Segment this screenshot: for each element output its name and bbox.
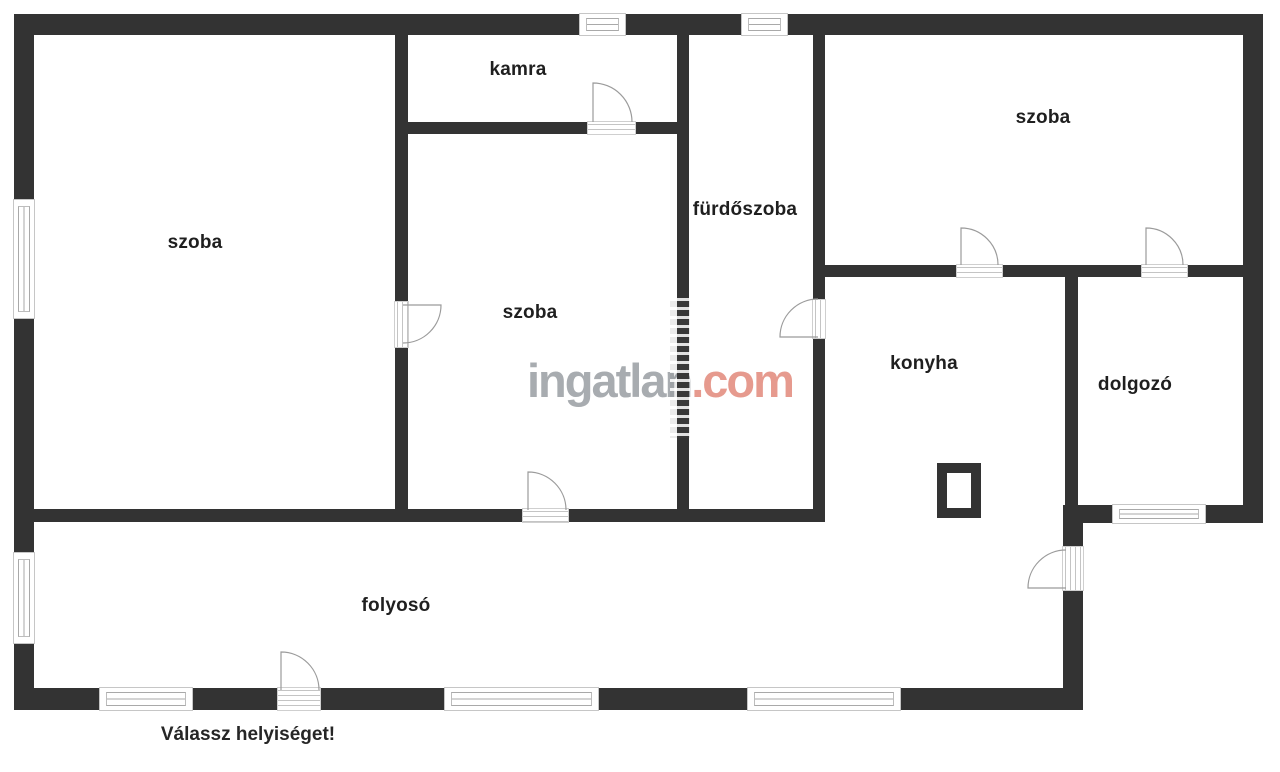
wall-outer-right bbox=[1243, 14, 1263, 523]
window-glass bbox=[748, 18, 781, 31]
door-threshold-konyha bbox=[957, 265, 1002, 277]
room-label-szoba-left: szoba bbox=[168, 232, 223, 254]
window-symbol-left-2 bbox=[14, 553, 34, 643]
window-symbol-bottom-2 bbox=[445, 688, 598, 710]
wall-szoba-left-divider bbox=[395, 35, 408, 510]
room-dolgozo[interactable]: dolgozó bbox=[1078, 277, 1243, 505]
room-label-furdoszoba: fürdőszoba bbox=[693, 199, 797, 221]
window-glass bbox=[18, 559, 30, 637]
window-glass bbox=[106, 692, 186, 706]
watermark: ingatlan.com bbox=[527, 357, 793, 404]
wall-outer-top bbox=[14, 14, 1263, 35]
chimney-symbol bbox=[937, 463, 981, 518]
room-label-konyha: konyha bbox=[890, 353, 958, 375]
watermark-brand-gray: ingatlan bbox=[527, 354, 691, 407]
window-symbol-bottom-3 bbox=[748, 688, 900, 710]
window-glass bbox=[586, 18, 619, 31]
room-kamra[interactable]: kamra bbox=[408, 35, 677, 122]
window-glass bbox=[451, 692, 592, 706]
window-symbol-top-1 bbox=[580, 14, 625, 35]
window-glass bbox=[754, 692, 894, 706]
window-symbol-dolgozo bbox=[1113, 505, 1205, 523]
chimney-hole bbox=[947, 473, 971, 508]
door-threshold-szoba-left bbox=[395, 302, 408, 347]
door-threshold-kamra bbox=[588, 122, 635, 134]
room-label-folyoso: folyosó bbox=[362, 595, 431, 617]
room-label-szoba-middle: szoba bbox=[503, 302, 558, 324]
room-label-szoba-top-right: szoba bbox=[1016, 107, 1071, 129]
floorplan-canvas: szoba kamra fürdőszoba szoba szoba konyh… bbox=[0, 0, 1280, 772]
wall-kamra-bottom bbox=[395, 122, 689, 134]
choose-room-prompt: Válassz helyiséget! bbox=[161, 724, 335, 746]
wall-konyha-dolgozo bbox=[1065, 277, 1078, 507]
wall-folyoso-top bbox=[14, 509, 823, 522]
window-glass bbox=[18, 206, 30, 312]
watermark-brand-accent: .com bbox=[691, 354, 793, 407]
watermark-barcode bbox=[670, 298, 690, 438]
wall-furdoszoba-right bbox=[813, 35, 825, 522]
window-glass bbox=[1119, 509, 1199, 519]
window-symbol-bottom-1 bbox=[100, 688, 192, 710]
window-symbol-top-2 bbox=[742, 14, 787, 35]
room-label-kamra: kamra bbox=[490, 59, 547, 81]
room-szoba-middle[interactable]: szoba bbox=[408, 134, 677, 509]
window-symbol-left-1 bbox=[14, 200, 34, 318]
door-threshold-entrance-front bbox=[278, 688, 320, 710]
door-threshold-furdoszoba bbox=[813, 300, 825, 338]
room-szoba-left[interactable]: szoba bbox=[34, 35, 395, 509]
door-threshold-dolgozo bbox=[1142, 265, 1187, 277]
room-furdoszoba[interactable]: fürdőszoba bbox=[689, 35, 813, 509]
room-szoba-top-right[interactable]: szoba bbox=[825, 35, 1243, 265]
door-threshold-szoba-middle bbox=[523, 509, 568, 522]
floorplan: szoba kamra fürdőszoba szoba szoba konyh… bbox=[0, 0, 1280, 772]
wall-furdoszoba-left bbox=[677, 35, 689, 522]
room-label-dolgozo: dolgozó bbox=[1098, 374, 1172, 396]
door-threshold-entrance-side bbox=[1063, 547, 1083, 590]
room-folyoso[interactable]: folyosó bbox=[34, 522, 1063, 688]
